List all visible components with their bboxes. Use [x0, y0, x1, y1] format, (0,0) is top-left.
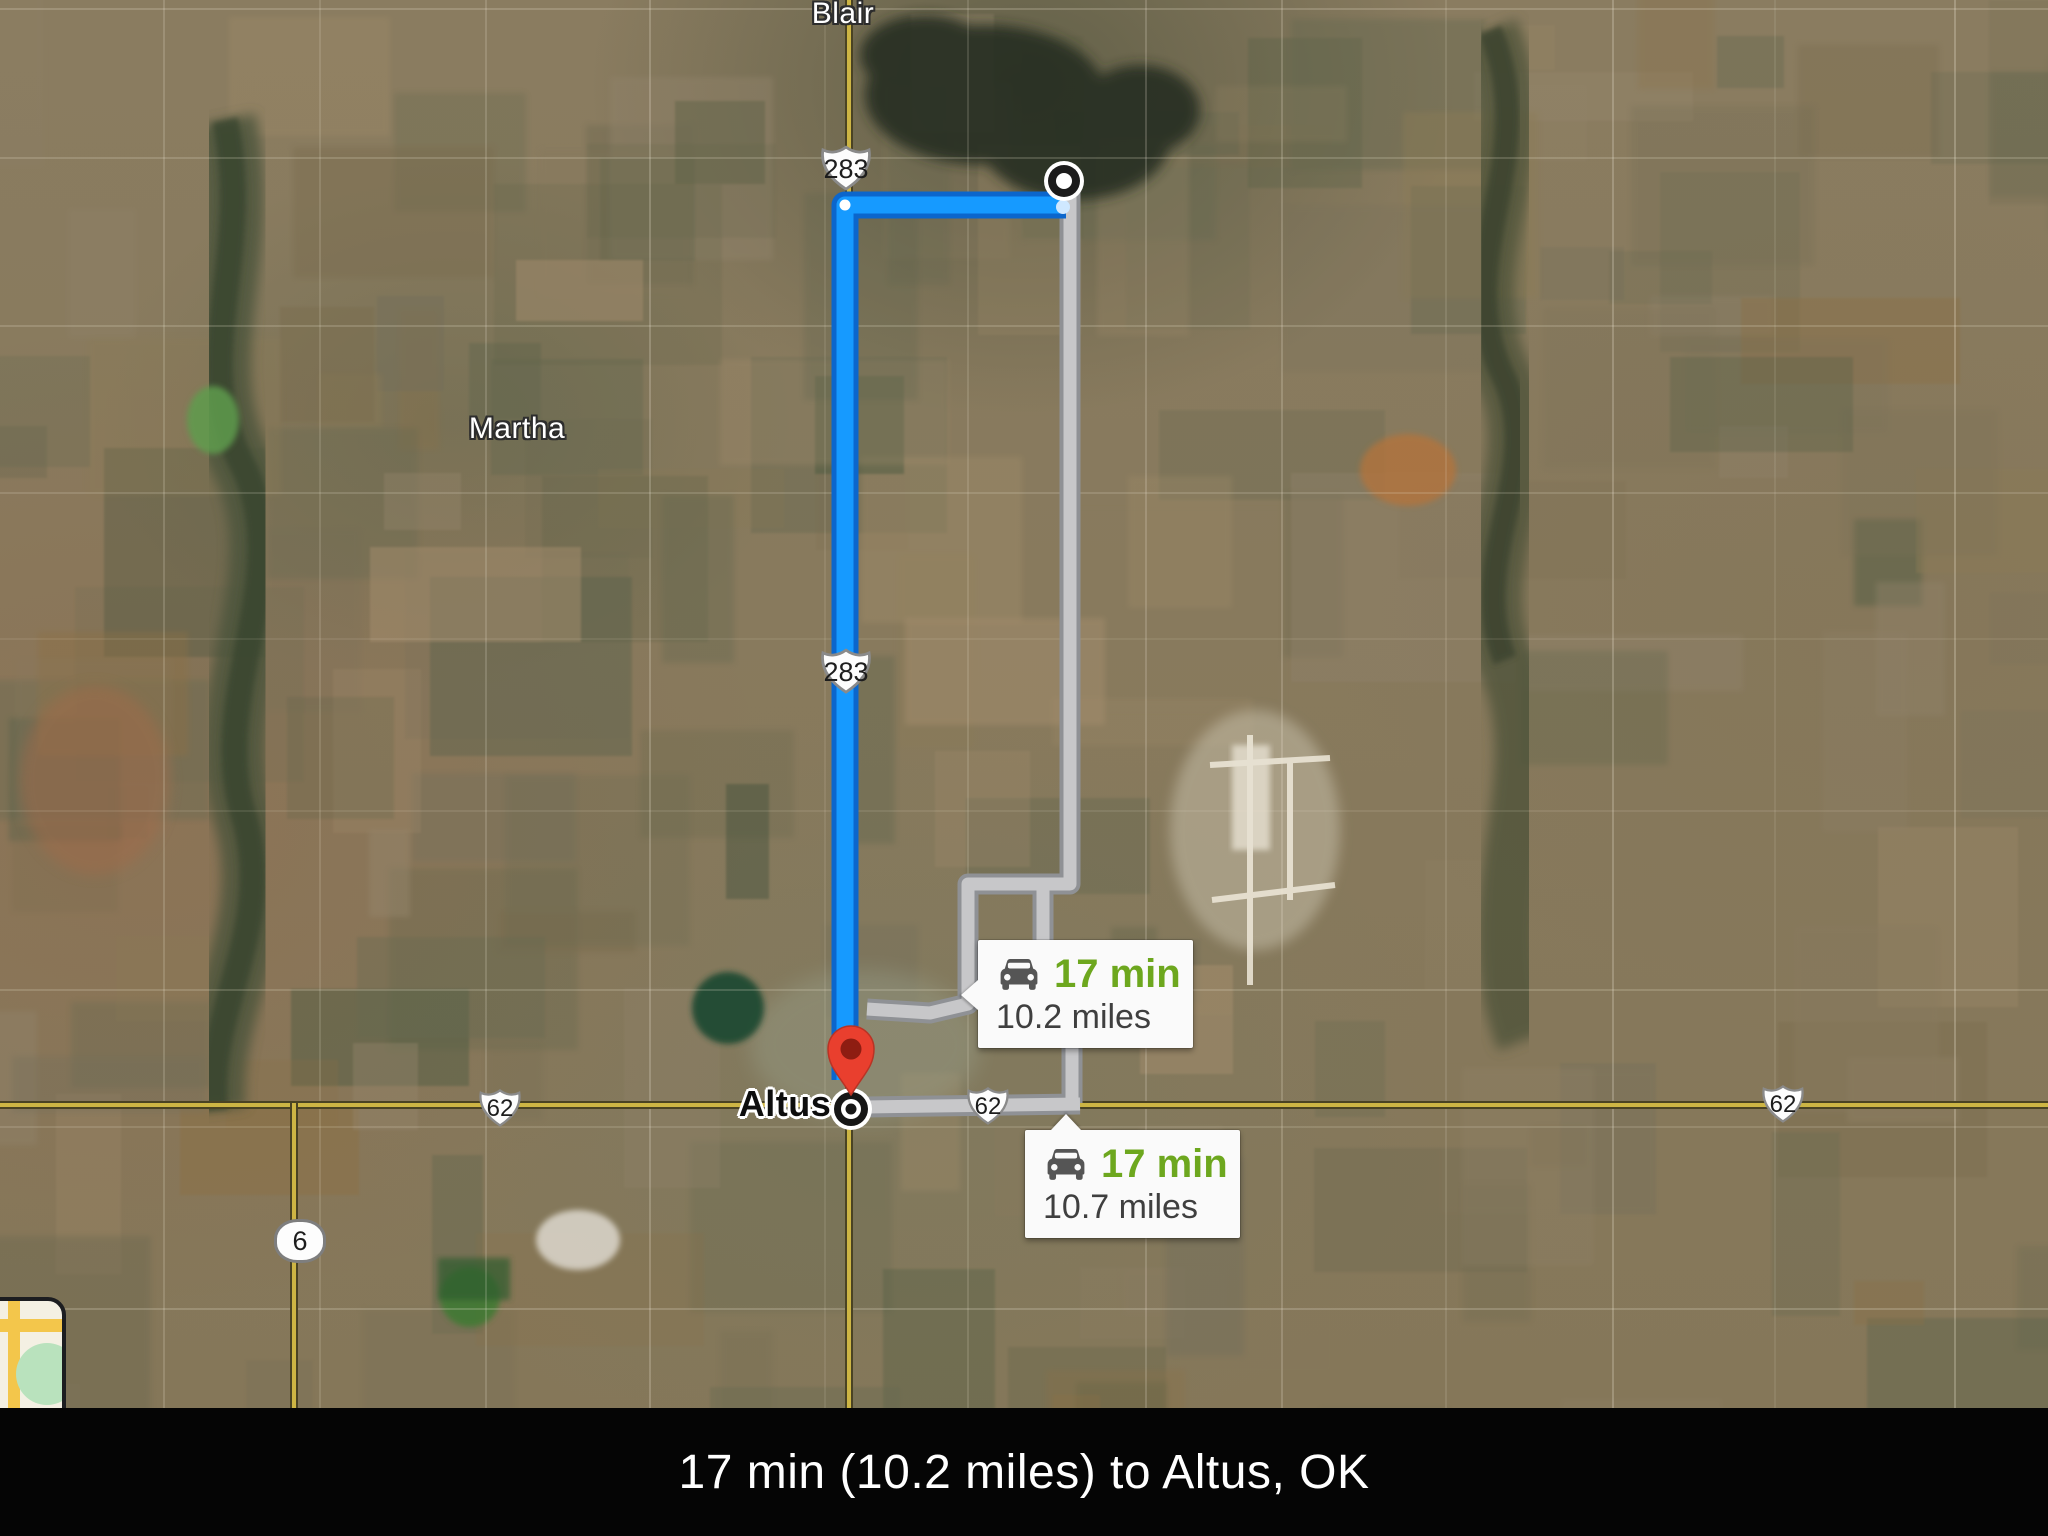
shield-label: 62	[975, 1093, 1002, 1121]
route-distance: 10.7 miles	[1043, 1190, 1240, 1224]
route-overview-screen: Blair Martha Altus 283 283 62 62 62 6	[0, 0, 2048, 1536]
status-bar: 17 min (10.2 miles) to Altus, OK	[0, 1408, 2048, 1536]
shield-us283-mid: 283	[818, 646, 874, 694]
callout-selected-route[interactable]: 17 min 10.2 miles	[978, 940, 1193, 1048]
thumb-road-v	[8, 1301, 20, 1408]
pin-hole	[841, 1039, 862, 1060]
place-label-blair: Blair	[812, 0, 875, 31]
destination-pin[interactable]	[828, 1026, 874, 1095]
routes-overlay	[0, 0, 2048, 1408]
route-corner-dot	[840, 200, 851, 211]
route-waypoint-dot	[1056, 200, 1070, 214]
callout-alternate-route[interactable]: 17 min 10.7 miles	[1025, 1130, 1240, 1238]
thumb-green-area	[16, 1343, 66, 1405]
car-icon	[996, 954, 1042, 994]
shield-ok6: 6	[274, 1219, 326, 1263]
place-label-altus: Altus	[739, 1083, 832, 1125]
map-canvas[interactable]: Blair Martha Altus 283 283 62 62 62 6	[0, 0, 2048, 1408]
shield-us283-north: 283	[818, 143, 874, 191]
start-marker[interactable]	[1044, 161, 1084, 201]
route-duration: 17 min	[1101, 1144, 1228, 1184]
shield-label: 62	[487, 1095, 514, 1123]
shield-label: 62	[1770, 1091, 1797, 1119]
place-label-martha: Martha	[469, 412, 565, 446]
status-text: 17 min (10.2 miles) to Altus, OK	[679, 1445, 1370, 1500]
map-type-toggle[interactable]	[0, 1297, 66, 1408]
route-duration: 17 min	[1054, 954, 1181, 994]
callout-tail	[1051, 1114, 1081, 1130]
shield-us62-east: 62	[1758, 1083, 1808, 1123]
shield-us62-west: 62	[475, 1087, 525, 1127]
callout-tail	[961, 980, 978, 1010]
shield-us62-altus: 62	[963, 1085, 1013, 1125]
shield-label: 283	[823, 154, 868, 185]
route-distance: 10.2 miles	[996, 1000, 1193, 1034]
car-icon	[1043, 1144, 1089, 1184]
shield-label: 283	[823, 657, 868, 688]
